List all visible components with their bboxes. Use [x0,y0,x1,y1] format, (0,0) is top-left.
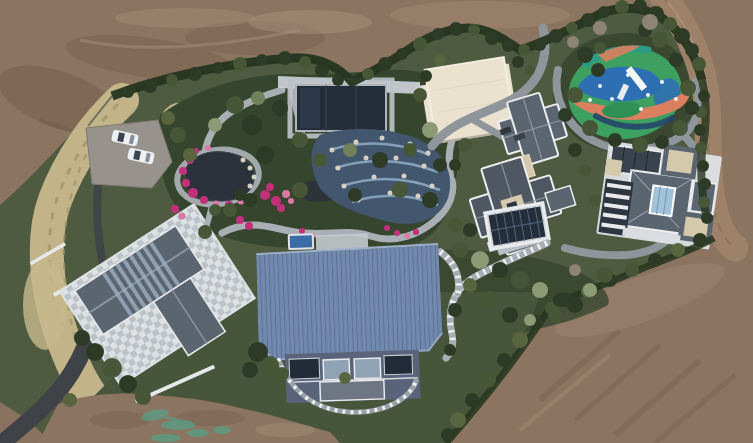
barn-window [384,355,413,375]
aerial-photo [0,0,753,443]
barn-pool [289,234,313,249]
glazed-courtyard [650,185,676,216]
barn-lower-window [320,380,385,401]
aerial-photo-canvas [0,0,753,443]
barn-roof [255,245,443,360]
glass-roof-annex [485,203,548,249]
barn-window [354,358,381,379]
barn-window [289,358,320,379]
glass-pavilion [290,80,392,136]
